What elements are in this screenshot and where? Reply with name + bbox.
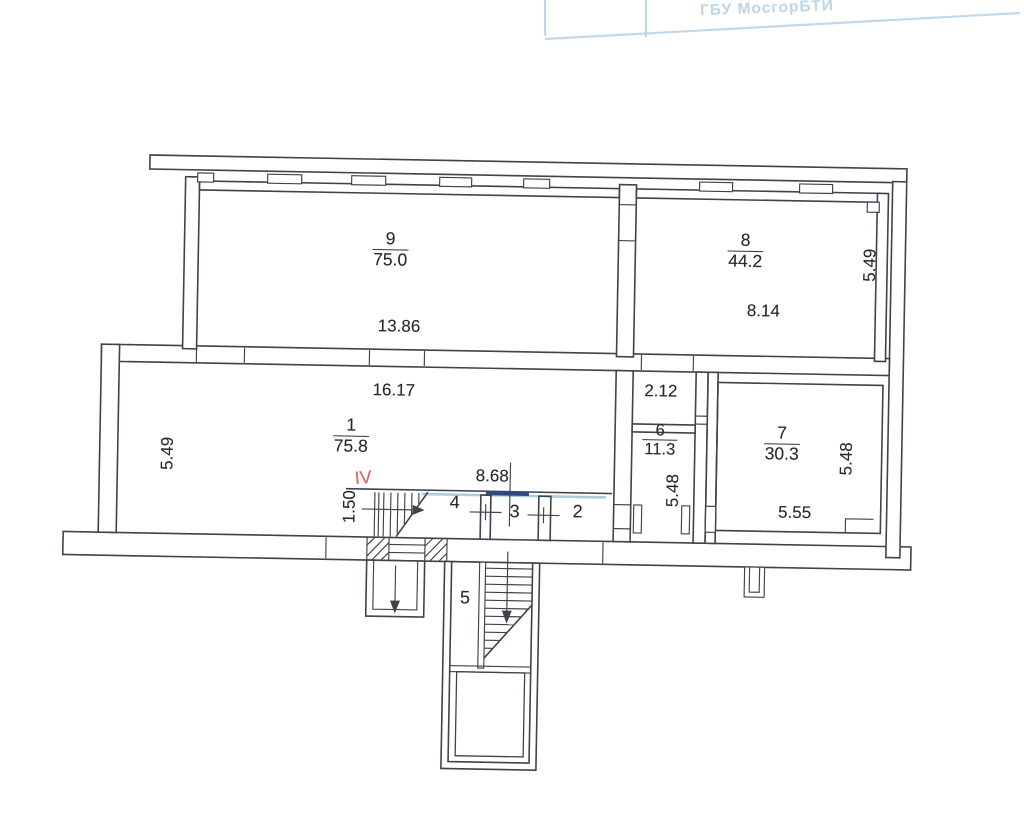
room-label-2: 2 bbox=[572, 501, 582, 522]
lower-stairs-room5 bbox=[441, 550, 540, 770]
dim-stair-width: 1.50 bbox=[339, 490, 360, 523]
room9-room8-walls bbox=[183, 173, 889, 362]
floor-mark: IV bbox=[354, 467, 373, 489]
room6-number: 6 bbox=[642, 421, 678, 441]
room-label-1: 1 75.8 bbox=[333, 415, 369, 456]
room1-area: 75.8 bbox=[334, 436, 368, 456]
room-label-3: 3 bbox=[509, 501, 519, 522]
scanned-floor-plan-page: ГБУ МосгорБТИ bbox=[0, 0, 1024, 811]
dim-room6-right: 5.48 bbox=[663, 474, 684, 507]
middle-wall-band bbox=[101, 344, 889, 375]
room7-area: 30.3 bbox=[765, 444, 799, 464]
dim-room1-top: 16.17 bbox=[372, 380, 415, 401]
room9-area: 75.0 bbox=[373, 250, 407, 270]
dim-rooms432-top: 8.68 bbox=[476, 466, 509, 487]
room-label-7: 7 30.3 bbox=[764, 423, 800, 464]
room9-number: 9 bbox=[373, 229, 409, 250]
room-label-6: 6 11.3 bbox=[642, 421, 678, 460]
dim-room7-right: 5.48 bbox=[836, 442, 857, 475]
dim-room8-right: 5.49 bbox=[860, 248, 881, 281]
floor-plan-drawing bbox=[0, 0, 1024, 827]
room8-number: 8 bbox=[728, 231, 764, 252]
dim-room8-bottom: 8.14 bbox=[747, 301, 780, 322]
room-label-8: 8 44.2 bbox=[727, 231, 763, 272]
room6-area: 11.3 bbox=[644, 441, 675, 460]
room-label-5: 5 bbox=[460, 587, 470, 608]
dim-room1-left: 5.49 bbox=[157, 437, 178, 470]
room7-number: 7 bbox=[764, 423, 800, 444]
dim-lobby-top: 2.12 bbox=[644, 381, 677, 402]
room-label-4: 4 bbox=[450, 492, 460, 513]
room8-area: 44.2 bbox=[728, 251, 762, 271]
room-label-9: 9 75.0 bbox=[372, 229, 408, 270]
upper-stairs bbox=[361, 491, 428, 537]
dim-room7-bottom: 5.55 bbox=[778, 503, 811, 524]
room1-number: 1 bbox=[333, 415, 369, 436]
dim-room9-bottom: 13.86 bbox=[378, 316, 421, 337]
floor-plan: 9 75.0 8 44.2 1 75.8 6 11.3 7 30.3 4 3 2… bbox=[0, 0, 1024, 827]
